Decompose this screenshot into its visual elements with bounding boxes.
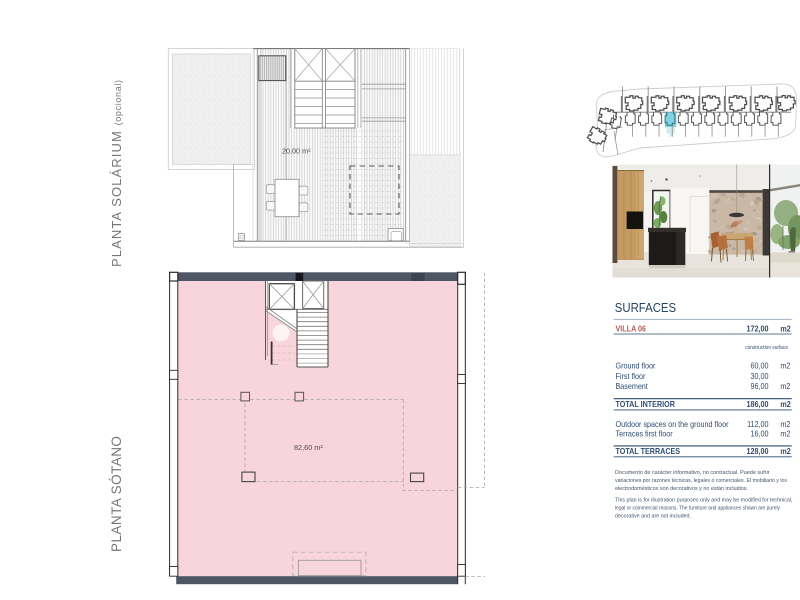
svg-text:96,00: 96,00 xyxy=(751,381,769,391)
svg-text:m2: m2 xyxy=(780,360,790,370)
svg-text:electrodomésticos son decorati: electrodomésticos son decorativos y no e… xyxy=(615,486,748,492)
svg-text:m2: m2 xyxy=(780,399,791,409)
svg-text:TOTAL INTERIOR: TOTAL INTERIOR xyxy=(616,399,675,409)
svg-text:60,00: 60,00 xyxy=(751,360,769,370)
svg-text:Documento de carácter informat: Documento de carácter informativo, no co… xyxy=(615,470,770,476)
svg-text:82,60 m²: 82,60 m² xyxy=(294,445,323,452)
svg-text:TOTAL TERRACES: TOTAL TERRACES xyxy=(616,446,681,456)
svg-text:Ground floor: Ground floor xyxy=(616,360,656,370)
svg-text:variaciones por razones técnic: variaciones por razones técnicas, legale… xyxy=(615,478,787,484)
svg-text:decorative and are not include: decorative and are not included. xyxy=(615,514,691,520)
svg-text:m2: m2 xyxy=(780,446,791,456)
svg-text:construction surface: construction surface xyxy=(745,345,788,351)
svg-text:186,00: 186,00 xyxy=(747,399,769,409)
svg-text:16,00: 16,00 xyxy=(751,429,769,439)
svg-text:20,00 m²: 20,00 m² xyxy=(282,148,311,155)
svg-text:VILLA 06: VILLA 06 xyxy=(616,324,647,334)
svg-text:128,00: 128,00 xyxy=(747,446,769,456)
svg-text:m2: m2 xyxy=(780,324,791,334)
svg-text:Terraces first floor: Terraces first floor xyxy=(616,429,673,439)
svg-text:m2: m2 xyxy=(780,429,790,439)
svg-text:legal or commercial reasons. T: legal or commercial reasons. The furnitu… xyxy=(615,506,780,512)
svg-text:Basement: Basement xyxy=(616,381,649,391)
svg-text:172,00: 172,00 xyxy=(747,324,769,334)
svg-text:m2: m2 xyxy=(780,381,790,391)
svg-text:This plan is for illustration: This plan is for illustration purposes o… xyxy=(615,498,793,504)
svg-text:30,00: 30,00 xyxy=(751,371,769,381)
svg-text:SURFACES: SURFACES xyxy=(615,300,676,315)
svg-text:First floor: First floor xyxy=(616,371,646,381)
